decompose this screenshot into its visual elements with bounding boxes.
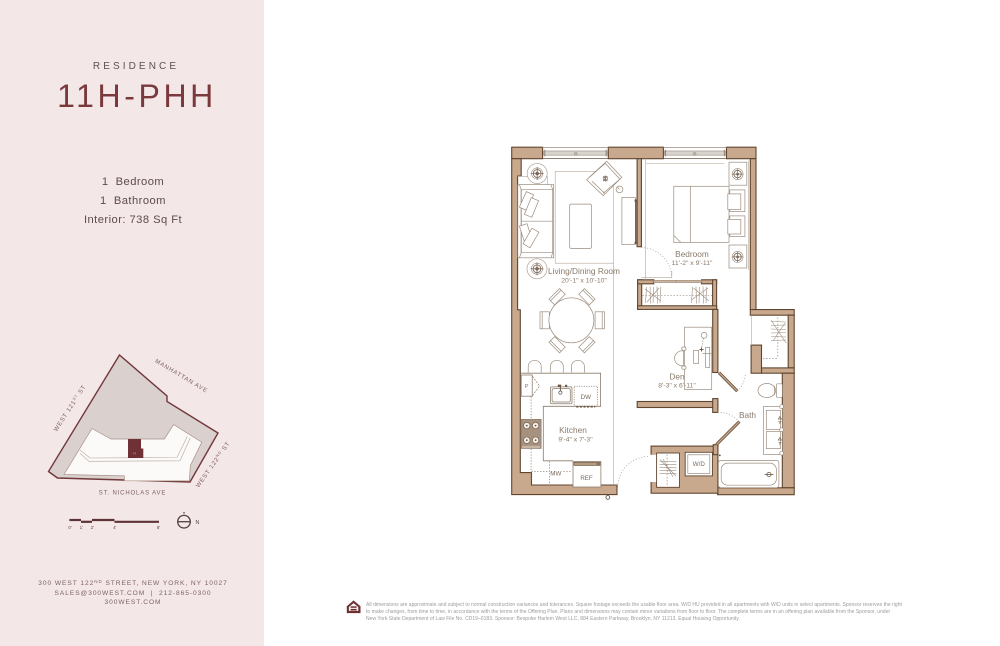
svg-text:Kitchen: Kitchen: [559, 425, 587, 435]
svg-text:Living/Dining Room: Living/Dining Room: [548, 266, 620, 276]
svg-text:Bedroom: Bedroom: [675, 249, 709, 259]
svg-text:0': 0': [68, 525, 71, 530]
svg-text:1': 1': [80, 525, 83, 530]
svg-text:H: H: [133, 452, 136, 456]
svg-text:W/D: W/D: [693, 461, 706, 468]
svg-text:MW: MW: [550, 471, 561, 478]
svg-text:ST. NICHOLAS AVE: ST. NICHOLAS AVE: [99, 491, 167, 497]
svg-text:P: P: [525, 384, 529, 390]
svg-text:8': 8': [157, 525, 160, 530]
svg-text:REF: REF: [580, 475, 593, 482]
svg-text:MANHATTAN AVE: MANHATTAN AVE: [154, 359, 209, 395]
svg-text:4': 4': [113, 525, 116, 530]
svg-text:9'-4" x 7'-3": 9'-4" x 7'-3": [558, 437, 593, 444]
svg-text:8'-3" x 6'-11": 8'-3" x 6'-11": [658, 383, 696, 390]
svg-text:Bath: Bath: [739, 410, 756, 420]
svg-text:11'-2" x 9'-11": 11'-2" x 9'-11": [672, 260, 713, 267]
svg-text:DW: DW: [581, 394, 591, 401]
svg-text:20'-1" x 10'-10": 20'-1" x 10'-10": [561, 278, 607, 285]
svg-text:2': 2': [91, 525, 94, 530]
svg-text:Den: Den: [669, 372, 685, 382]
svg-text:N: N: [196, 520, 200, 526]
